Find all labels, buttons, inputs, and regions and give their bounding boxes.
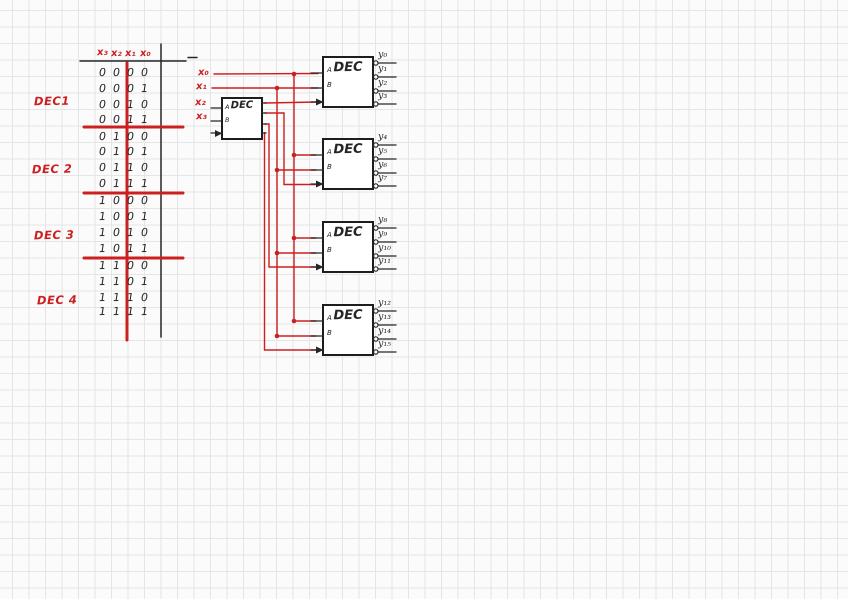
decoder-pin-a-label: A	[327, 149, 332, 156]
group-label-dec3: DEC 3	[34, 230, 75, 242]
output-label: y₁₀	[378, 243, 391, 253]
table-digit: 1	[141, 211, 148, 222]
signal-label-x1: x₁	[196, 82, 207, 92]
table-digit: 1	[127, 306, 134, 317]
table-digit: 0	[141, 67, 148, 78]
col-header-x2: x₂	[111, 49, 122, 60]
table-digit: 1	[127, 114, 134, 125]
decoder-pin-b-label: B	[327, 330, 332, 337]
table-digit: 1	[127, 178, 134, 189]
output-label: y₁₄	[378, 326, 391, 336]
col-header-x3: x₃	[97, 48, 108, 59]
table-digit: 0	[141, 292, 148, 303]
output-label: y₁₁	[378, 256, 391, 266]
table-digit: 1	[113, 146, 120, 157]
table-digit: 0	[127, 211, 134, 222]
table-digit: 1	[99, 243, 106, 254]
table-digit: 0	[127, 195, 134, 206]
table-digit: 1	[141, 114, 148, 125]
table-digit: 0	[99, 99, 106, 110]
table-digit: 1	[127, 243, 134, 254]
decoder-pin-b-label: B	[327, 164, 332, 171]
table-digit: 0	[99, 67, 106, 78]
table-digit: 0	[127, 83, 134, 94]
drawing-canvas[interactable]: x₃ x₂ x₁ x₀ DEC1 DEC 2 DEC 3 DEC 4 x₀ x₁…	[0, 0, 848, 599]
col-header-x1: x₁	[125, 49, 136, 60]
table-digit: 1	[141, 178, 148, 189]
output-label: y₆	[378, 160, 388, 170]
output-label: y₁	[378, 64, 388, 74]
group-label-dec2: DEC 2	[32, 164, 73, 176]
output-label: y₇	[378, 173, 388, 183]
table-digit: 1	[127, 292, 134, 303]
table-digit: 1	[113, 306, 120, 317]
output-label: y₁₅	[378, 339, 391, 349]
table-digit: 0	[113, 227, 120, 238]
table-digit: 0	[141, 99, 148, 110]
table-digit: 0	[141, 227, 148, 238]
table-digit: 1	[141, 243, 148, 254]
group-label-dec4: DEC 4	[37, 295, 78, 307]
table-digit: 0	[141, 195, 148, 206]
table-digit: 0	[141, 131, 148, 142]
col-header-x0: x₀	[140, 49, 151, 60]
output-label: y₂	[378, 78, 388, 88]
decoder-pin-b-label: B	[327, 82, 332, 89]
decoder-pin-a-label: A	[327, 67, 332, 74]
table-digit: 1	[99, 260, 106, 271]
table-digit: 1	[141, 146, 148, 157]
table-digit: 1	[141, 276, 148, 287]
table-digit: 0	[127, 146, 134, 157]
table-digit: 1	[141, 306, 148, 317]
table-digit: 1	[113, 276, 120, 287]
output-label: y₃	[378, 91, 388, 101]
table-digit: 0	[127, 260, 134, 271]
table-digit: 1	[141, 83, 148, 94]
table-digit: 0	[141, 162, 148, 173]
table-digit: 1	[113, 178, 120, 189]
labels-layer: x₃ x₂ x₁ x₀ DEC1 DEC 2 DEC 3 DEC 4 x₀ x₁…	[0, 0, 848, 599]
table-digit: 0	[127, 276, 134, 287]
table-digit: 1	[99, 227, 106, 238]
table-digit: 0	[113, 114, 120, 125]
table-digit: 1	[113, 260, 120, 271]
table-digit: 0	[113, 211, 120, 222]
table-digit: 0	[99, 114, 106, 125]
table-digit: 0	[99, 178, 106, 189]
group-label-dec1: DEC1	[34, 96, 70, 108]
table-digit: 0	[113, 67, 120, 78]
table-digit: 1	[113, 131, 120, 142]
table-digit: 0	[99, 146, 106, 157]
table-digit: 0	[99, 131, 106, 142]
table-digit: 0	[141, 260, 148, 271]
table-digit: 0	[99, 83, 106, 94]
table-digit: 1	[99, 306, 106, 317]
output-label: y₁₃	[378, 312, 391, 322]
table-digit: 1	[127, 227, 134, 238]
table-digit: 1	[99, 195, 106, 206]
decoder-pin-a-label: A	[327, 315, 332, 322]
output-label: y₁₂	[378, 298, 391, 308]
signal-label-x3: x₃	[196, 112, 207, 122]
table-digit: 0	[99, 162, 106, 173]
table-digit: 1	[127, 99, 134, 110]
table-digit: 0	[127, 131, 134, 142]
table-digit: 1	[99, 276, 106, 287]
table-digit: 1	[127, 162, 134, 173]
output-label: y₀	[378, 50, 388, 60]
table-digit: 0	[113, 243, 120, 254]
table-digit: 1	[99, 211, 106, 222]
table-digit: 1	[113, 162, 120, 173]
output-label: y₅	[378, 146, 388, 156]
table-digit: 1	[99, 292, 106, 303]
table-digit: 0	[113, 99, 120, 110]
output-label: y₉	[378, 229, 388, 239]
signal-label-x2: x₂	[195, 98, 206, 108]
output-label: y₈	[378, 215, 388, 225]
decoder-pin-a-label: A	[327, 232, 332, 239]
table-digit: 0	[113, 195, 120, 206]
table-digit: 0	[113, 83, 120, 94]
table-digit: 0	[127, 67, 134, 78]
predecoder-pin-b-label: B	[225, 117, 229, 124]
signal-label-x0: x₀	[198, 68, 209, 78]
table-digit: 1	[113, 292, 120, 303]
output-label: y₄	[378, 132, 388, 142]
predecoder-pin-a-label: A	[225, 104, 229, 111]
decoder-pin-b-label: B	[327, 247, 332, 254]
